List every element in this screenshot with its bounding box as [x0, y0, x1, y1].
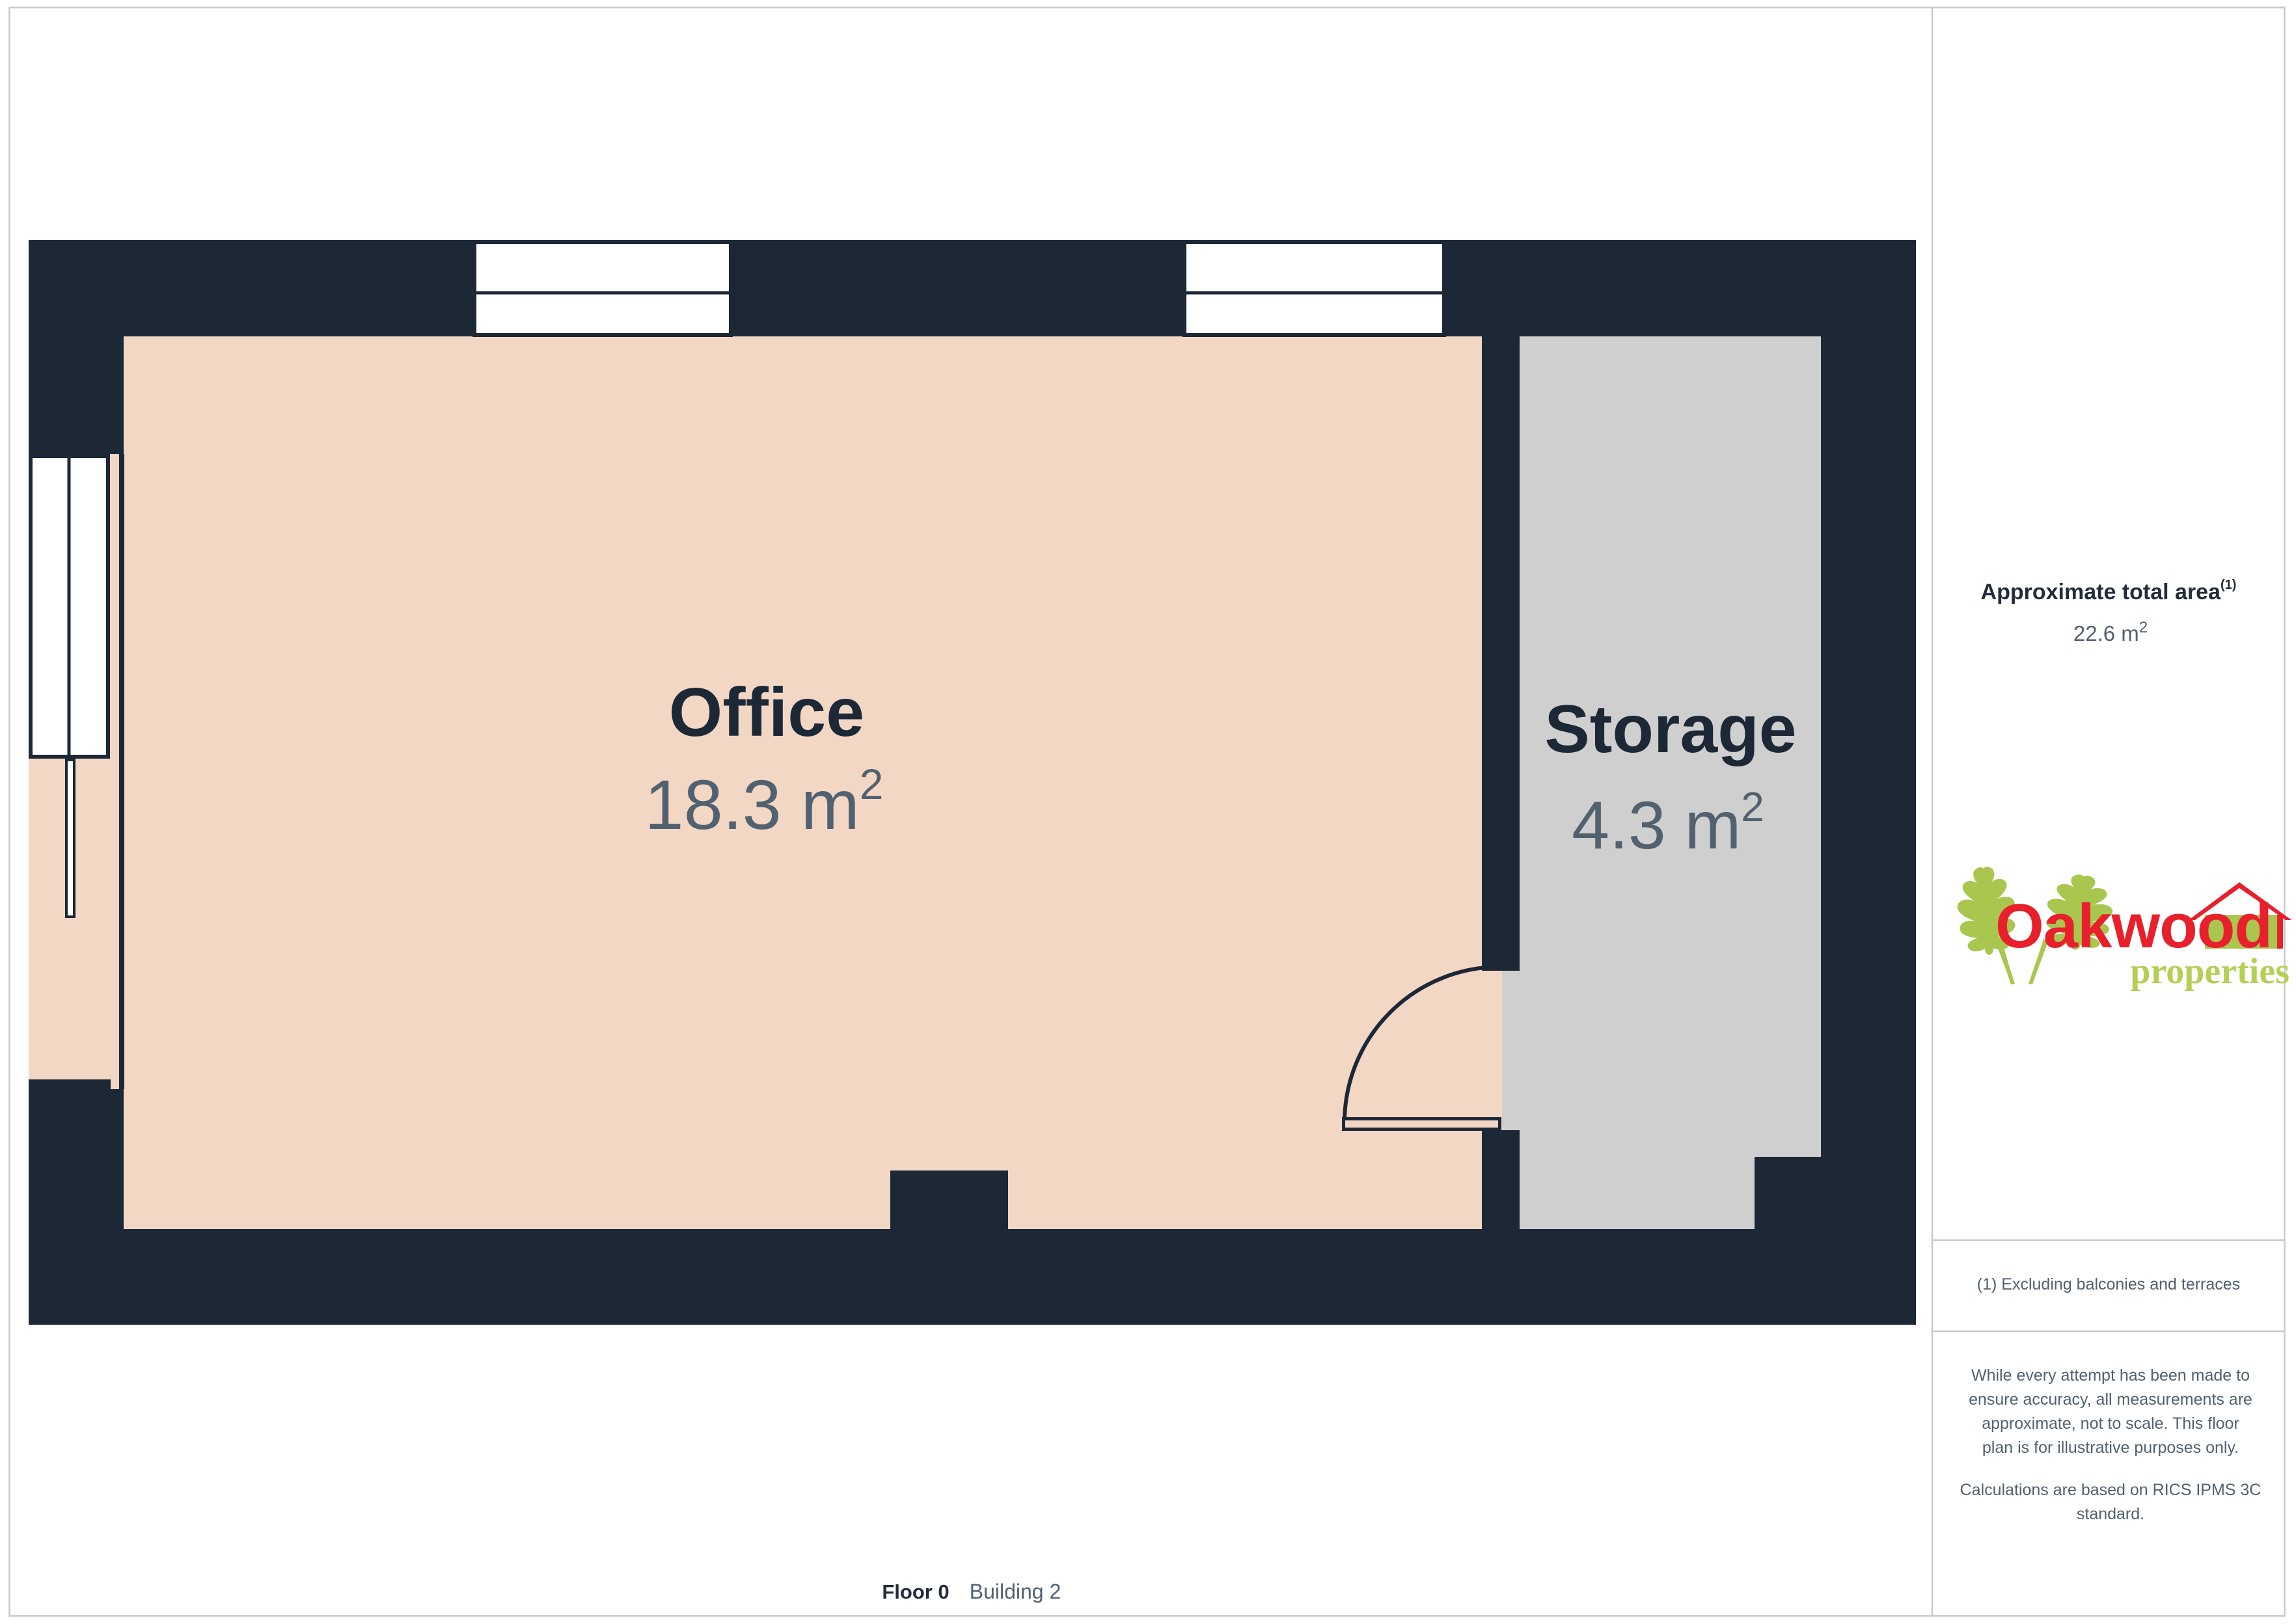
svg-text:Approximate total area(1): Approximate total area(1) — [1981, 578, 2237, 604]
svg-text:Floor 0: Floor 0 — [882, 1580, 949, 1603]
svg-text:plan is for illustrative purpo: plan is for illustrative purposes only. — [1982, 1439, 2239, 1457]
svg-text:While every attempt has been m: While every attempt has been made to — [1971, 1366, 2250, 1385]
svg-text:Office: Office — [669, 674, 864, 751]
svg-text:18.3 m2: 18.3 m2 — [645, 760, 884, 844]
svg-text:Calculations are based on RICS: Calculations are based on RICS IPMS 3C — [1960, 1481, 2262, 1499]
svg-text:standard.: standard. — [2077, 1505, 2144, 1523]
svg-text:Storage: Storage — [1544, 692, 1796, 767]
svg-text:Oakwood: Oakwood — [1995, 891, 2272, 961]
svg-text:ensure accuracy, all measureme: ensure accuracy, all measurements are — [1969, 1390, 2252, 1409]
svg-text:(1) Excluding balconies and te: (1) Excluding balconies and terraces — [1977, 1275, 2240, 1293]
svg-text:properties: properties — [2130, 951, 2289, 992]
svg-text:Building 2: Building 2 — [970, 1580, 1061, 1603]
svg-text:22.6 m2: 22.6 m2 — [2073, 619, 2148, 645]
svg-text:approximate, not to scale. Thi: approximate, not to scale. This floor — [1982, 1414, 2239, 1433]
svg-text:4.3 m2: 4.3 m2 — [1572, 783, 1764, 863]
